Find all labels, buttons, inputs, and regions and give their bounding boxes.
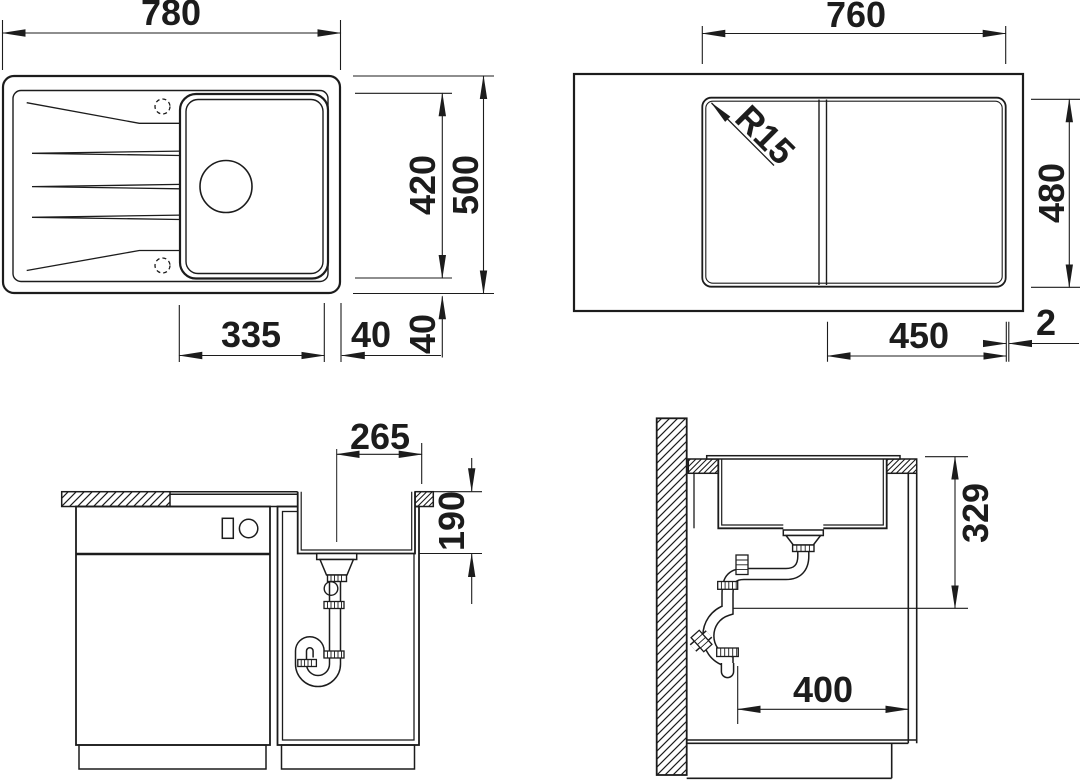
view-front-section [62, 443, 482, 769]
dim-label-drain-height: 329 [958, 483, 994, 543]
wall-section [657, 418, 687, 775]
dim-label-gap: 2 [1036, 305, 1056, 341]
right-plinth [282, 745, 415, 769]
dim-label-rim-to-edge: 40 [405, 314, 441, 354]
drain-plumbing-front [298, 449, 357, 681]
appliance-knob-icon [239, 519, 257, 537]
cutout-divider [819, 100, 827, 286]
pipe-end-cap [721, 663, 733, 678]
dim-label-bowl-to-edge: 40 [351, 317, 391, 353]
strainer-flange-side [783, 530, 823, 536]
appliance-button-icon [222, 518, 233, 538]
sink-rim-side [707, 456, 900, 459]
sink-bowl [180, 94, 328, 279]
dim-label-inner-depth: 420 [405, 155, 441, 215]
dim-label-cutout-width: 760 [826, 0, 886, 33]
drain-plumbing-side [691, 530, 823, 678]
strainer-nut-side [793, 545, 814, 552]
tap-holes [155, 99, 170, 273]
drawing-page: 780 420 500 335 40 40 760 R15 480 450 2 … [0, 0, 1080, 781]
dim-label-bowl-section: 450 [889, 318, 949, 354]
dim-label-drain-offset: 265 [350, 419, 410, 455]
bowl-section-side [718, 459, 886, 528]
strainer-nut [328, 575, 347, 582]
plinth-side [687, 743, 892, 778]
bowl-section-front [298, 492, 415, 554]
dim-label-sink-width: 780 [141, 0, 201, 31]
view-side-section [657, 418, 968, 778]
view-cutout-plan [574, 26, 1080, 362]
dim-label-total-depth: 500 [448, 155, 484, 215]
cabinet-floor [687, 740, 917, 743]
strainer-flange [317, 554, 357, 560]
dim-label-pipe-clearance: 400 [793, 672, 853, 708]
dim-label-bowl-width: 335 [221, 317, 281, 353]
worktop-outline [574, 74, 1023, 311]
technical-drawing-canvas [0, 0, 1080, 781]
left-plinth [79, 745, 266, 769]
pipe-couplings-side [691, 555, 748, 657]
worktop-section-side [688, 459, 916, 473]
strainer-body [320, 560, 353, 576]
dim-label-cutout-depth: 480 [1034, 163, 1070, 223]
strainer-body-side [786, 536, 821, 546]
left-cabinet [76, 507, 270, 770]
dim-label-bowl-depth: 190 [434, 491, 470, 551]
drainboard-grooves [27, 103, 180, 271]
